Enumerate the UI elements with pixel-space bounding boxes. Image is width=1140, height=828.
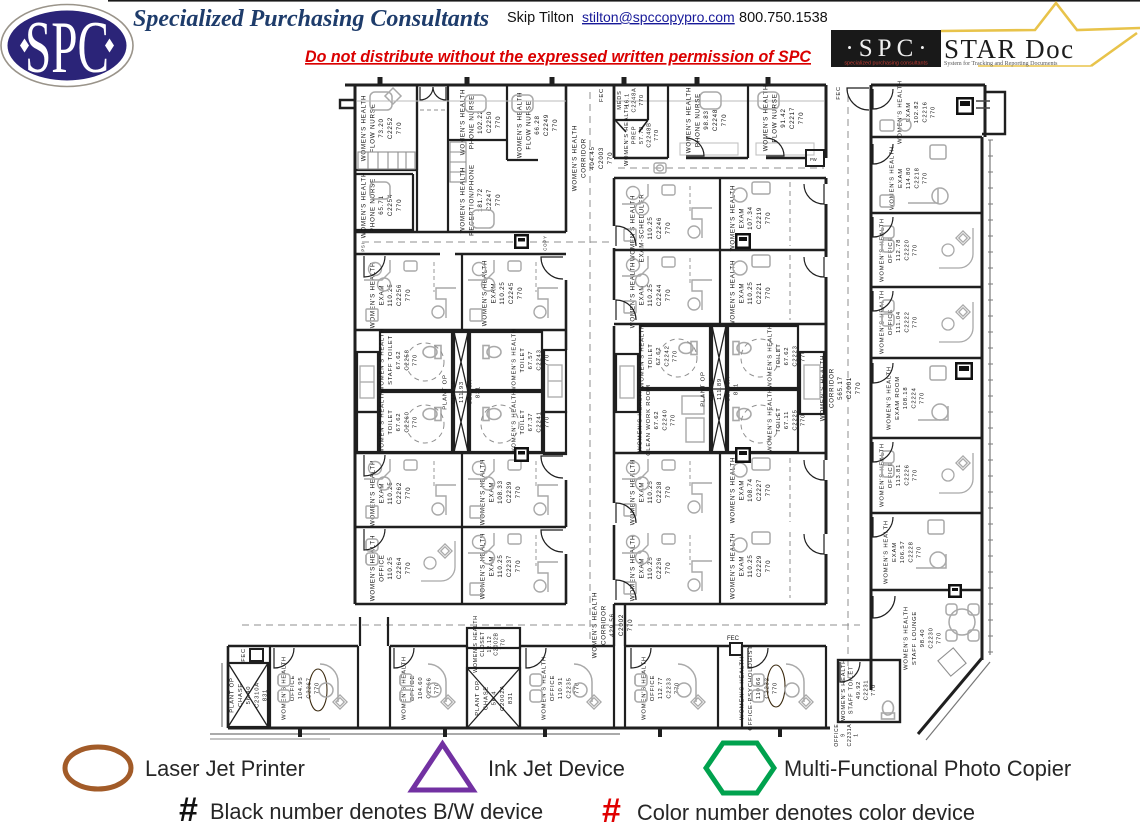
svg-text:770: 770 (552, 119, 559, 132)
svg-text:C2310A: C2310A (254, 682, 260, 708)
svg-text:770: 770 (413, 354, 419, 366)
svg-text:113.81: 113.81 (896, 464, 902, 486)
svg-text:110.25: 110.25 (647, 216, 654, 239)
svg-text:C2237: C2237 (506, 555, 513, 577)
svg-text:EXAM: EXAM (898, 168, 904, 188)
svg-text:C2242: C2242 (664, 345, 670, 366)
svg-text:C2001: C2001 (846, 377, 853, 399)
svg-text:WOMEN'S HEALTH: WOMEN'S HEALTH (898, 80, 904, 144)
svg-text:C2250: C2250 (486, 111, 493, 133)
svg-text:770: 770 (654, 129, 660, 141)
svg-text:565.17: 565.17 (837, 376, 844, 400)
svg-text:110.25: 110.25 (499, 281, 506, 304)
svg-text:C2220: C2220 (904, 239, 910, 260)
svg-text:#: # (602, 792, 621, 828)
svg-text:770: 770 (773, 682, 779, 694)
svg-text:770: 770 (495, 194, 502, 207)
svg-text:770: 770 (765, 560, 772, 573)
svg-text:C2248: C2248 (712, 109, 719, 131)
svg-text:C2216: C2216 (922, 101, 928, 122)
svg-text:System for Tracking and Report: System for Tracking and Reporting Docume… (944, 60, 1058, 67)
svg-text:C2249: C2249 (543, 114, 550, 136)
svg-text:OFFICE: OFFICE (550, 675, 556, 701)
svg-text:770: 770 (765, 287, 772, 300)
svg-text:770: 770 (765, 484, 772, 497)
svg-text:SPC: SPC (25, 7, 109, 89)
svg-text:108.18: 108.18 (903, 387, 909, 410)
svg-text:65.71: 65.71 (378, 195, 385, 214)
svg-text:108.74: 108.74 (747, 478, 754, 502)
svg-text:FEC: FEC (599, 88, 605, 102)
svg-text:WOMEN'S HEALTH: WOMEN'S HEALTH (473, 615, 479, 673)
svg-text:Laser Jet Printer: Laser Jet Printer (145, 756, 305, 781)
svg-text:770: 770 (665, 562, 672, 575)
svg-text:WOMEN'S HEALTH: WOMEN'S HEALTH (572, 125, 579, 192)
svg-text:C2217: C2217 (789, 107, 796, 129)
svg-text:111.89: 111.89 (717, 378, 723, 400)
svg-text:C2219: C2219 (756, 207, 763, 229)
svg-text:110.91: 110.91 (558, 677, 564, 699)
svg-text:WOMEN'S HEALTH: WOMEN'S HEALTH (370, 460, 377, 527)
svg-text:108.33: 108.33 (497, 480, 504, 504)
svg-text:110.25: 110.25 (647, 283, 654, 306)
svg-text:831: 831 (508, 692, 514, 704)
svg-text:770: 770 (405, 289, 412, 302)
svg-text:WOMEN'S HEALTH: WOMEN'S HEALTH (380, 328, 386, 392)
svg-text:104.95: 104.95 (298, 677, 304, 700)
svg-text:TOILET: TOILET (776, 343, 782, 368)
svg-text:Ink Jet Device: Ink Jet Device (488, 756, 625, 781)
svg-text:C2227: C2227 (756, 479, 763, 501)
svg-text:Specialized Purchasing Consult: Specialized Purchasing Consultants (133, 6, 489, 32)
svg-text:WOMEN'S HEALTH: WOMEN'S HEALTH (361, 95, 368, 162)
svg-text:12.12: 12.12 (487, 636, 493, 653)
svg-text:831: 831 (263, 689, 269, 701)
svg-text:9: 9 (841, 733, 847, 737)
svg-text:WOMEN'S HEALTH: WOMEN'S HEALTH (740, 656, 746, 720)
svg-text:C2002A: C2002A (500, 685, 506, 711)
svg-text:PSI: PSI (361, 242, 366, 251)
svg-text:FLOW NURSE: FLOW NURSE (369, 103, 376, 152)
svg-text:67.62: 67.62 (396, 413, 402, 432)
svg-text:PLANT OP: PLANT OP (230, 677, 236, 712)
svg-text:770: 770 (515, 486, 522, 499)
svg-text:C2239: C2239 (506, 481, 513, 503)
svg-text:WOMEN'S HEALTH: WOMEN'S HEALTH (460, 167, 467, 234)
svg-text:EXAM: EXAM (378, 285, 385, 306)
svg-text:770: 770 (913, 316, 919, 328)
svg-text:110.25: 110.25 (497, 554, 504, 577)
svg-text:800.750.1538: 800.750.1538 (739, 10, 828, 26)
svg-text:C2002B: C2002B (494, 632, 500, 656)
svg-text:EXAM ROOM: EXAM ROOM (895, 376, 901, 420)
svg-text:CHASE: CHASE (709, 377, 715, 401)
svg-text:770: 770 (665, 486, 672, 499)
svg-text:112.78: 112.78 (896, 239, 902, 261)
svg-text:MEDS: MEDS (617, 90, 623, 109)
svg-text:770: 770 (405, 487, 412, 500)
svg-text:WOMEN'S HEALTH: WOMEN'S HEALTH (517, 92, 524, 159)
svg-text:770: 770 (396, 122, 403, 135)
svg-text:770: 770 (517, 287, 524, 300)
svg-text:C2228: C2228 (908, 541, 914, 562)
svg-text:STAFF LOUNGE: STAFF LOUNGE (912, 611, 918, 665)
svg-text:770: 770 (500, 638, 506, 649)
svg-text:C2231A: C2231A (847, 724, 853, 747)
svg-text:PW: PW (810, 157, 817, 162)
svg-text:181.72: 181.72 (477, 188, 484, 212)
svg-text:WOMEN'S HEALTH: WOMEN'S HEALTH (512, 328, 518, 392)
svg-text:770: 770 (545, 354, 551, 366)
svg-text:C2003: C2003 (598, 147, 605, 169)
svg-text:C2218: C2218 (914, 167, 920, 188)
svg-text:OFFICE-PSYCHOLOGIST: OFFICE-PSYCHOLOGIST (748, 645, 754, 730)
svg-text:C2258: C2258 (404, 349, 410, 370)
svg-text:C2223: C2223 (792, 345, 798, 366)
svg-text:STAFF TOILET: STAFF TOILET (388, 335, 394, 385)
svg-text:770: 770 (931, 106, 937, 118)
svg-text:TOILET: TOILET (520, 347, 526, 372)
svg-text:49.92: 49.92 (856, 681, 862, 699)
svg-text:C2260: C2260 (404, 411, 410, 432)
svg-text:67.62: 67.62 (784, 347, 790, 366)
svg-text:Multi-Functional Photo Copier: Multi-Functional Photo Copier (784, 756, 1071, 781)
svg-text:770: 770 (495, 116, 502, 129)
svg-text:WOMEN'S HEALTH: WOMEN'S HEALTH (370, 262, 377, 329)
svg-text:WOMEN'S HEALTH: WOMEN'S HEALTH (887, 366, 893, 430)
svg-text:C2230: C2230 (928, 627, 934, 648)
svg-text:1: 1 (853, 733, 859, 737)
svg-text:112.77: 112.77 (658, 677, 664, 699)
svg-text:COPY: COPY (543, 235, 548, 251)
svg-text:C2225: C2225 (792, 409, 798, 430)
svg-text:C2224: C2224 (911, 387, 917, 408)
svg-text:67.62: 67.62 (396, 351, 402, 370)
svg-text:770: 770 (671, 414, 677, 426)
svg-text:CLEAN WORK ROOM: CLEAN WORK ROOM (646, 384, 652, 456)
svg-text:770: 770 (673, 350, 679, 362)
svg-text:C2231: C2231 (864, 680, 870, 701)
svg-text:PLANT OP: PLANT OP (701, 371, 707, 406)
svg-text:STAFF TOILET: STAFF TOILET (848, 666, 854, 714)
svg-text:C2221: C2221 (756, 282, 763, 304)
svg-text:107.34: 107.34 (747, 206, 754, 230)
svg-text:CLOSET: CLOSET (480, 631, 486, 657)
svg-text:C2248B: C2248B (647, 122, 653, 147)
svg-text:FEC: FEC (727, 636, 740, 642)
svg-text:OFFICE: OFFICE (888, 309, 894, 335)
svg-text:FLOW NURSE: FLOW NURSE (525, 100, 532, 149)
svg-text:OFFICE: OFFICE (834, 723, 840, 746)
svg-text:C2238: C2238 (656, 481, 663, 503)
svg-text:FEC: FEC (836, 86, 842, 100)
svg-text:WOMEN'S HEALTH: WOMEN'S HEALTH (542, 656, 548, 720)
svg-text:770: 770 (665, 289, 672, 302)
svg-text:PLANT OP: PLANT OP (443, 374, 449, 409)
svg-text:C2240: C2240 (662, 409, 668, 430)
svg-text:CORRIDOR: CORRIDOR (580, 138, 587, 178)
svg-text:C2233: C2233 (666, 677, 672, 698)
svg-text:770: 770 (413, 416, 419, 428)
svg-text:C2236: C2236 (656, 557, 663, 579)
svg-text:770: 770 (937, 632, 943, 644)
svg-text:EXAM: EXAM (638, 482, 645, 503)
svg-text:110.25: 110.25 (747, 554, 754, 577)
svg-text:CHASE: CHASE (451, 380, 457, 404)
svg-text:404.45: 404.45 (589, 146, 596, 170)
svg-text:EXAM: EXAM (378, 483, 385, 504)
svg-text:C2235: C2235 (566, 677, 572, 698)
svg-text:73.20: 73.20 (378, 118, 385, 137)
svg-text:WOMEN'S HEALTH: WOMEN'S HEALTH (686, 87, 693, 154)
svg-text:770: 770 (917, 546, 923, 558)
svg-text:OFFICE: OFFICE (650, 675, 656, 701)
svg-text:C2222: C2222 (904, 311, 910, 332)
svg-text:C2264: C2264 (396, 557, 403, 579)
svg-text:C2245: C2245 (508, 282, 515, 304)
svg-text:PHONE NURSE: PHONE NURSE (468, 95, 475, 149)
svg-text:CHASE: CHASE (238, 683, 244, 707)
svg-text:770: 770 (396, 199, 403, 212)
svg-text:102.22: 102.22 (477, 110, 484, 134)
svg-text:67.11: 67.11 (784, 411, 790, 429)
svg-text:TOILET: TOILET (648, 343, 654, 368)
svg-text:56.4: 56.4 (492, 691, 498, 706)
svg-text:#: # (179, 791, 198, 828)
svg-text:111.04: 111.04 (896, 311, 902, 333)
svg-text:770: 770 (855, 382, 862, 395)
svg-text:114.80: 114.80 (906, 167, 912, 189)
svg-text:770: 770 (920, 392, 926, 404)
svg-text:EXAM: EXAM (738, 480, 745, 501)
svg-text:770: 770 (765, 212, 772, 225)
svg-text:C2252: C2252 (387, 117, 394, 139)
svg-text:TOILET: TOILET (388, 409, 394, 434)
svg-text:WOMEN'S HEALTH: WOMEN'S HEALTH (380, 390, 386, 454)
svg-text:770: 770 (515, 560, 522, 573)
svg-text:EXAM: EXAM (638, 558, 645, 579)
svg-text:EXAM: EXAM (738, 208, 745, 229)
svg-text:WOMEN'S HEALTH: WOMEN'S HEALTH (361, 172, 368, 239)
svg-text:WOMEN'S HEALTH: WOMEN'S HEALTH (640, 324, 646, 388)
svg-text:C2246: C2246 (656, 217, 663, 239)
svg-text:66.28: 66.28 (534, 115, 541, 134)
svg-text:98.40: 98.40 (920, 629, 926, 648)
svg-text:770: 770 (798, 112, 805, 125)
svg-text:C2229: C2229 (756, 555, 763, 577)
svg-text:770: 770 (545, 416, 551, 428)
svg-text:C2248A: C2248A (632, 87, 638, 112)
svg-text:OFFICE: OFFICE (410, 675, 416, 701)
svg-text:770: 770 (923, 172, 929, 184)
svg-text:WOMEN'S HEALTH: WOMEN'S HEALTH (904, 606, 910, 670)
svg-text:C2256: C2256 (396, 284, 403, 306)
svg-text:770: 770 (871, 684, 877, 696)
svg-text:104.60: 104.60 (418, 677, 424, 700)
svg-text:TOILET: TOILET (520, 409, 526, 434)
svg-text:98.83: 98.83 (703, 110, 710, 129)
svg-text:PREP: PREP (631, 126, 637, 145)
svg-text:110.25: 110.25 (387, 556, 394, 579)
svg-text:67.62: 67.62 (654, 411, 660, 430)
svg-text:EXAM: EXAM (738, 556, 745, 577)
svg-text:770: 770 (721, 114, 728, 127)
svg-text:Skip Tilton: Skip Tilton (507, 10, 574, 26)
svg-text:C2247: C2247 (486, 189, 493, 211)
svg-text:111.93: 111.93 (459, 381, 465, 403)
svg-text:specialized purchasing consult: specialized purchasing consultants (844, 61, 928, 67)
svg-text:EXAM: EXAM (638, 285, 645, 306)
svg-text:CORRIDOR: CORRIDOR (828, 368, 835, 408)
svg-text:Do not distribute without the: Do not distribute without the expressed … (305, 48, 812, 66)
svg-text:770: 770 (665, 222, 672, 235)
svg-text:C2244: C2244 (656, 284, 663, 306)
svg-text:C2241: C2241 (536, 411, 542, 432)
svg-text:56.40: 56.40 (246, 686, 252, 705)
svg-text:WOMEN'S HEALTH: WOMEN'S HEALTH (370, 535, 377, 602)
svg-text:770: 770 (801, 414, 807, 426)
svg-text:91.42: 91.42 (780, 108, 787, 127)
svg-text:57.78: 57.78 (639, 126, 645, 144)
svg-text:OFFICE: OFFICE (378, 554, 385, 582)
svg-text:770: 770 (405, 562, 412, 575)
svg-text:EXAM: EXAM (892, 542, 898, 562)
svg-text:PLANT OP: PLANT OP (475, 680, 481, 715)
svg-text:WOMEN'S HEALTH: WOMEN'S HEALTH (768, 324, 774, 388)
svg-text:WOMEN'S HEALTH: WOMEN'S HEALTH (768, 388, 774, 452)
svg-text:Black number denotes B/W devic: Black number denotes B/W device (210, 799, 543, 824)
svg-text:Color number denotes color dev: Color number denotes color device (637, 800, 975, 825)
svg-text:· S P C ·: · S P C · (845, 35, 926, 62)
svg-text:110.25: 110.25 (747, 281, 754, 304)
svg-text:102.82: 102.82 (914, 101, 920, 124)
svg-text:770: 770 (913, 244, 919, 256)
svg-text:FLOW NURSE: FLOW NURSE (771, 93, 778, 142)
svg-text:770: 770 (913, 469, 919, 481)
svg-text:FEC: FEC (241, 648, 247, 662)
svg-text:C2243: C2243 (536, 349, 542, 370)
svg-text:CHASE: CHASE (483, 686, 489, 710)
svg-text:WOMEN'S HEALTH: WOMEN'S HEALTH (512, 390, 518, 454)
svg-text:770: 770 (639, 94, 645, 106)
svg-text:67.37: 67.37 (528, 413, 534, 432)
svg-text:C2226: C2226 (904, 464, 910, 485)
svg-text:WOMEN'S HEALTH: WOMEN'S HEALTH (763, 85, 770, 152)
svg-text:67.57: 67.57 (528, 351, 534, 370)
svg-text:110.66: 110.66 (756, 677, 762, 699)
svg-text:STAR Doc: STAR Doc (944, 34, 1075, 64)
svg-text:WOMEN'S HEALTH: WOMEN'S HEALTH (642, 656, 648, 720)
svg-text:stilton@spccopypro.com: stilton@spccopypro.com (582, 9, 735, 25)
svg-text:WOMEN'S HEALTH: WOMEN'S HEALTH (624, 104, 630, 166)
svg-text:WOMEN'S HEALTH: WOMEN'S HEALTH (841, 659, 847, 721)
svg-text:EXAM: EXAM (738, 283, 745, 304)
svg-text:106.57: 106.57 (900, 541, 906, 564)
svg-text:C2262: C2262 (396, 482, 403, 504)
